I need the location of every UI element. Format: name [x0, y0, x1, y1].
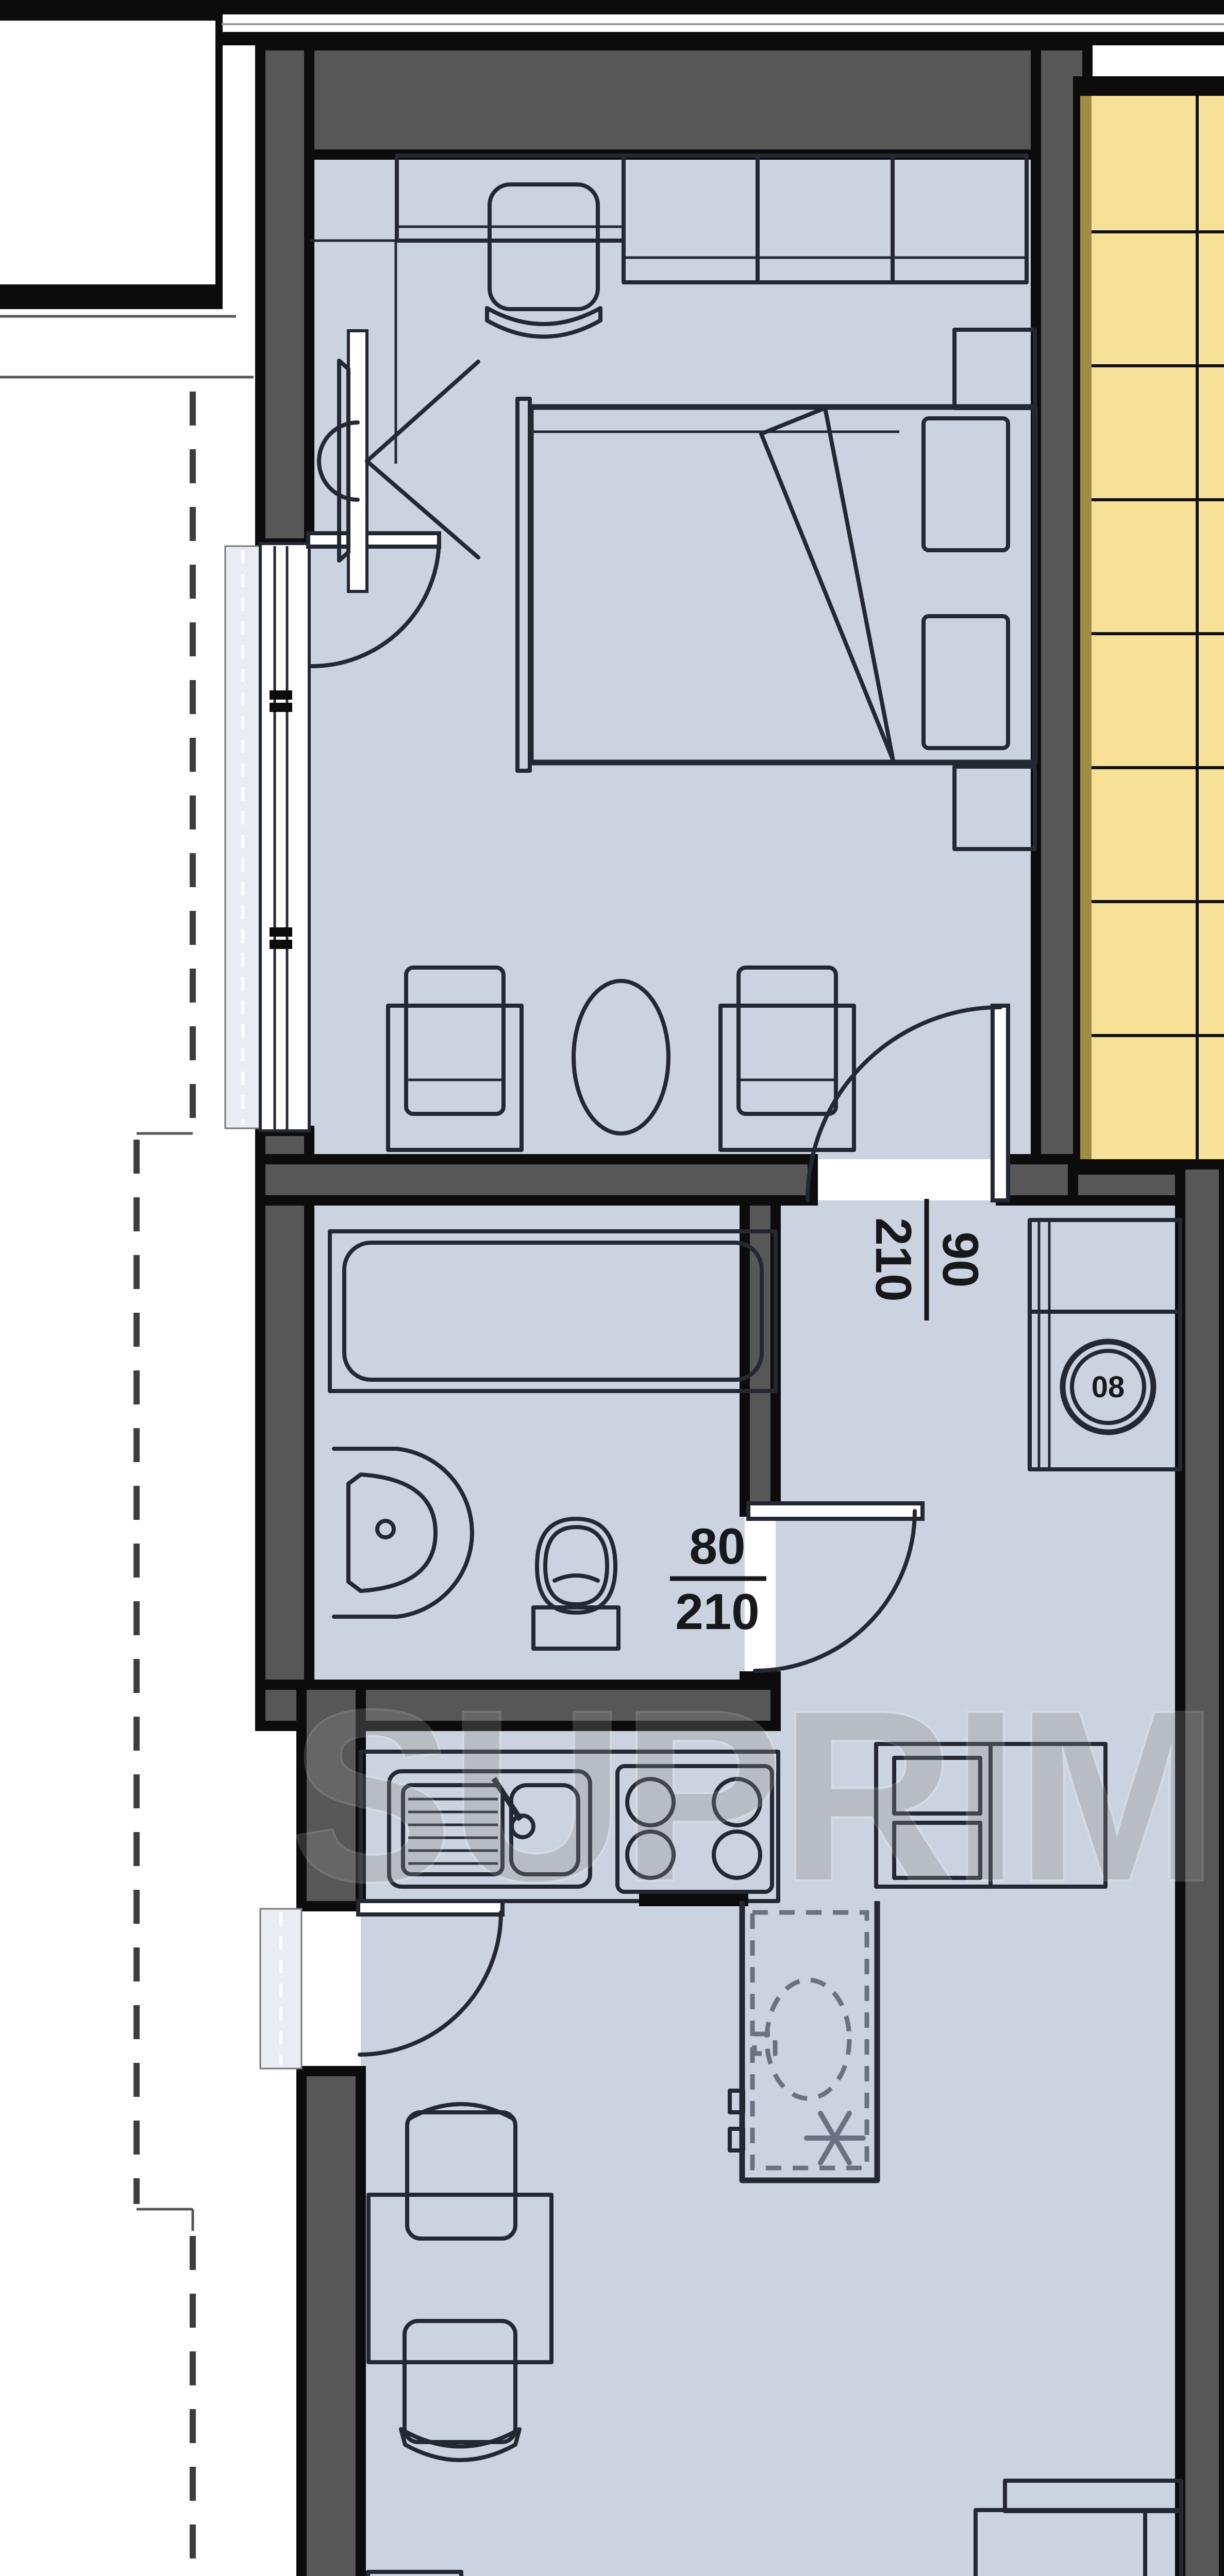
tv-panel — [348, 331, 367, 591]
staircase-flight — [1092, 96, 1224, 1159]
door-width: 90 — [932, 1231, 989, 1287]
wall-top — [260, 45, 1087, 155]
window-transom — [270, 703, 292, 712]
neighbor-wall-bottom — [0, 284, 223, 309]
wall-west-upper — [260, 45, 309, 544]
staircase-stringer — [1080, 96, 1092, 1159]
door-height: 210 — [865, 1217, 922, 1302]
window-frame — [260, 544, 309, 1131]
wall-west-living — [301, 2071, 361, 2576]
floor-plan-a102: 08 — [0, 0, 1224, 2576]
balcony-door-leaf-bedroom — [308, 533, 439, 547]
window-transom — [270, 940, 292, 949]
bedroom-floor — [309, 155, 1036, 1159]
window-transom — [270, 927, 292, 937]
bathroom-door-leaf — [748, 1503, 923, 1519]
neighbor-structure — [0, 0, 254, 377]
window-transom — [270, 690, 292, 700]
door-height: 210 — [675, 1583, 760, 1640]
top-band-black-1 — [222, 0, 1224, 14]
watermark: SUPRIMMO — [291, 1660, 1224, 1931]
neighbor-wall-top — [0, 0, 222, 21]
building-top-edge — [222, 0, 1224, 45]
washing-machine-label: 08 — [1092, 1370, 1125, 1404]
door-width: 80 — [689, 1518, 745, 1574]
wall-west-middle — [260, 1131, 309, 1726]
site-boundary — [137, 392, 193, 2576]
neighbor-wall-right — [215, 0, 223, 309]
staircase — [1073, 76, 1224, 1170]
bedroom-door-leaf — [993, 1006, 1008, 1200]
wall-bedroom-bottom-left — [260, 1159, 813, 1200]
